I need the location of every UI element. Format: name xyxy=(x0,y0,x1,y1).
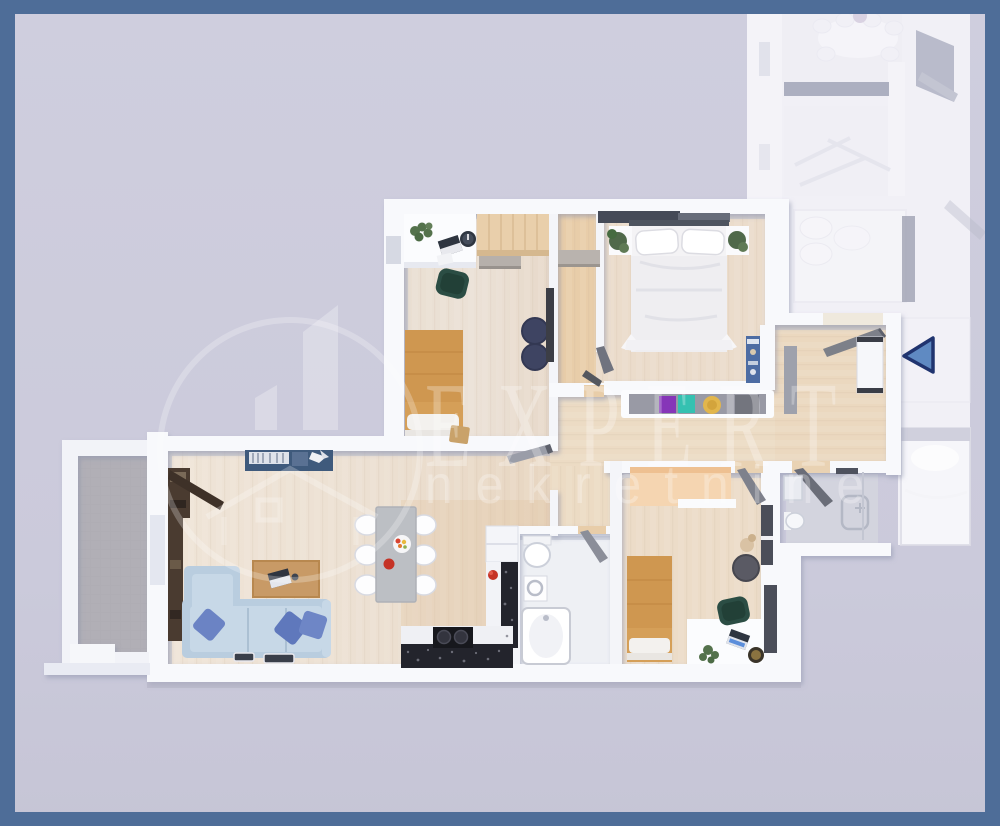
svg-text:nekretnine: nekretnine xyxy=(425,454,887,514)
